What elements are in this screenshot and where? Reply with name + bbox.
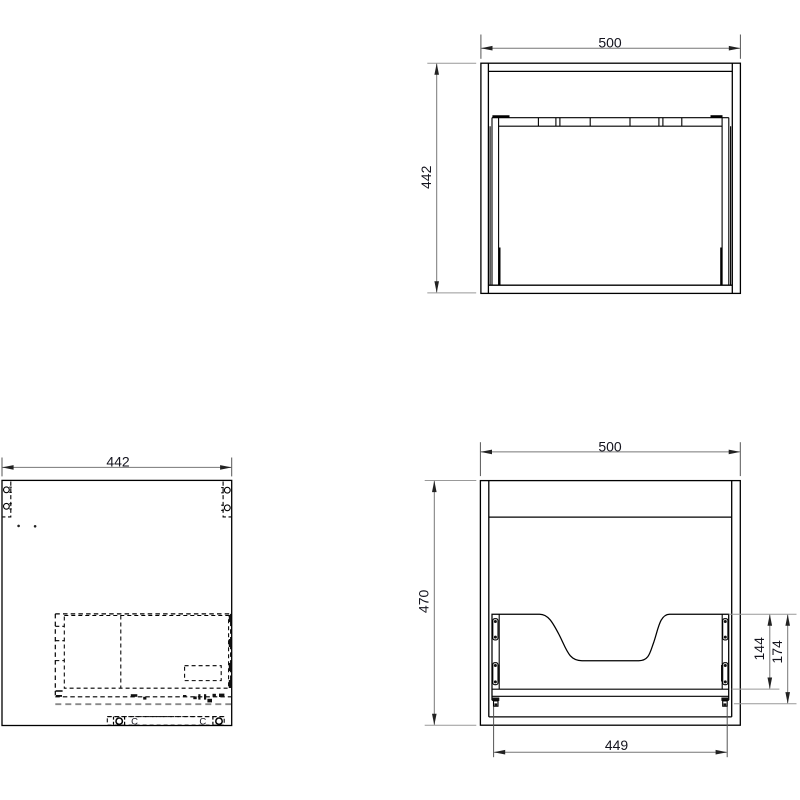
svg-text:500: 500 (598, 35, 622, 51)
svg-text:442: 442 (418, 165, 434, 189)
svg-text:470: 470 (415, 590, 431, 614)
svg-text:500: 500 (598, 438, 622, 454)
svg-text:C: C (199, 717, 206, 728)
svg-text:442: 442 (106, 454, 130, 470)
svg-text:449: 449 (605, 737, 629, 753)
svg-text:144: 144 (751, 637, 767, 661)
svg-text:174: 174 (769, 640, 785, 664)
svg-text:C: C (131, 717, 138, 728)
